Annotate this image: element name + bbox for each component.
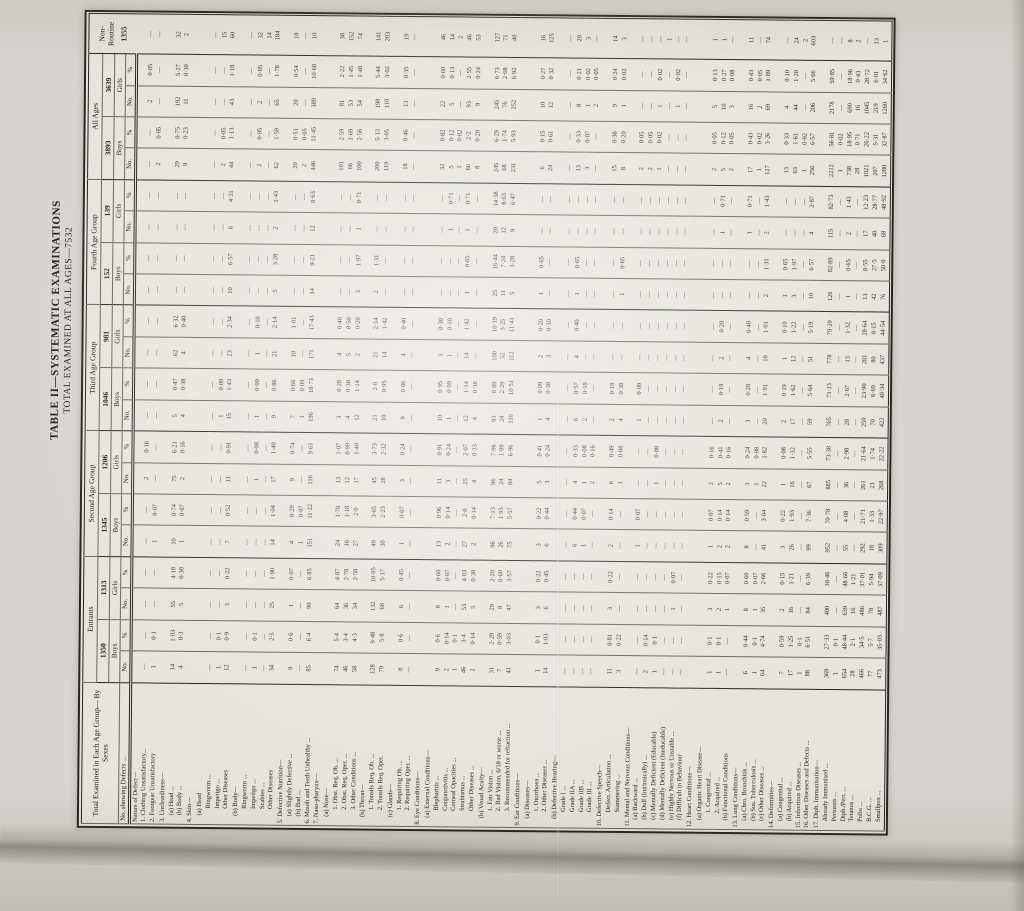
percent-value: 0·96 xyxy=(436,497,445,529)
percent-value: — xyxy=(683,122,692,154)
count-value xyxy=(363,339,373,371)
count-value: 952 xyxy=(824,532,833,564)
count-value xyxy=(414,654,424,686)
non-routine-value: 46 xyxy=(466,18,475,58)
count-value: 127 xyxy=(765,154,774,186)
count-value: 171 xyxy=(308,338,317,370)
count-value: 1 xyxy=(669,593,678,625)
percent-value: 4·08 xyxy=(842,501,851,533)
count-value xyxy=(528,278,538,310)
non-routine-value xyxy=(193,15,203,55)
percent-value: — xyxy=(580,561,589,593)
percent-value: 2·59 xyxy=(338,119,347,151)
percent-value: 0·02 xyxy=(837,124,846,156)
percent-value: 0·38 xyxy=(180,369,189,401)
count-value: 2 xyxy=(647,153,656,185)
count-value xyxy=(192,86,202,118)
percent-value: — xyxy=(173,243,182,275)
percent-value: 0·54 xyxy=(293,55,302,87)
count-value: — xyxy=(242,652,251,684)
girls-total: 1313 xyxy=(97,556,110,619)
count-value: — xyxy=(408,402,417,434)
percent-value: 1·14 xyxy=(463,371,472,403)
percent-value: 0·07 xyxy=(752,563,761,595)
count-value xyxy=(696,656,706,688)
percent-value xyxy=(771,374,781,406)
percent-value xyxy=(426,434,436,466)
percent-value: — xyxy=(211,118,220,150)
percent-value: — xyxy=(754,374,763,406)
count-value: 88 xyxy=(805,657,814,689)
count-value: — xyxy=(210,212,219,244)
count-value: 1 xyxy=(724,594,733,626)
count-value: — xyxy=(616,530,625,562)
count-value: 66 xyxy=(347,150,356,182)
count-value: 3 xyxy=(729,91,738,123)
count-value: 10 xyxy=(227,275,236,307)
non-routine-value xyxy=(329,16,339,56)
count-value: 76 xyxy=(502,89,511,121)
percent-value xyxy=(818,186,828,218)
percent-value: 0·40 xyxy=(181,306,190,338)
count-value: — xyxy=(652,530,661,562)
count-value xyxy=(526,466,536,498)
count-value xyxy=(136,85,148,117)
percent-value: 0·14 xyxy=(716,499,725,531)
count-value: — xyxy=(145,337,154,369)
percent-value xyxy=(597,561,607,593)
percent-value: 0·30 xyxy=(183,54,192,86)
count-value: — xyxy=(153,400,162,432)
count-value: 1 xyxy=(534,655,543,687)
percent-value: 0·40 xyxy=(573,310,582,342)
count-value xyxy=(529,152,539,184)
count-value: — xyxy=(674,153,683,185)
percent-value: 0·44 xyxy=(742,625,751,657)
percent-value: 1·25 xyxy=(787,626,796,658)
percent-value: — xyxy=(264,181,273,213)
count-value: 1 xyxy=(297,527,306,559)
count-value: 10 xyxy=(763,343,772,375)
percent-value: 0·07 xyxy=(584,121,593,153)
percent-value: 0·30 xyxy=(546,309,555,341)
count-value: 5 xyxy=(171,400,180,432)
count-value: — xyxy=(457,88,466,120)
percent-value xyxy=(478,623,488,655)
count-value: 3 xyxy=(336,402,345,434)
percent-value: — xyxy=(411,57,420,89)
count-value: 28 xyxy=(380,465,389,497)
count-value: 17 xyxy=(747,154,756,186)
count-value: — xyxy=(754,343,763,375)
non-routine-value: 60 xyxy=(230,15,239,55)
percent-value xyxy=(555,309,565,341)
count-value: 28 xyxy=(850,658,859,690)
percent-value: — xyxy=(566,121,575,153)
count-value: — xyxy=(212,86,221,118)
percent-value: — xyxy=(838,61,847,93)
count-value: — xyxy=(207,589,216,621)
percent-value xyxy=(629,122,639,154)
count-value: 1 xyxy=(581,467,590,499)
count-value: — xyxy=(216,526,225,558)
count-value: — xyxy=(173,274,182,306)
non-routine-value: — xyxy=(248,15,257,55)
count-value xyxy=(361,528,371,560)
percent-value: 6·29 xyxy=(493,120,502,152)
percent-value: — xyxy=(206,620,215,652)
count-value: — xyxy=(678,593,687,625)
count-value: — xyxy=(574,215,583,247)
percent-value: 0·38 xyxy=(618,373,627,405)
count-value: 13 xyxy=(335,464,344,496)
count-value xyxy=(163,274,173,306)
percent-value xyxy=(700,248,710,280)
count-value: — xyxy=(709,342,718,374)
percent-value: 0·51 xyxy=(292,118,301,150)
count-value xyxy=(160,588,170,620)
count-value: 8 xyxy=(474,151,483,183)
percent-value: 0·09 xyxy=(218,369,227,401)
percent-value: — xyxy=(583,184,592,216)
percent-value: — xyxy=(637,247,646,279)
non-routine-value: 1 xyxy=(712,20,721,60)
count-value: — xyxy=(672,279,681,311)
count-value: 14 xyxy=(270,527,279,559)
count-value: — xyxy=(799,280,808,312)
percent-value: 1·69 xyxy=(347,119,356,151)
count-value: 4 xyxy=(180,400,189,432)
percent-value xyxy=(598,435,608,467)
count-value: 26 xyxy=(788,532,797,564)
pct-caption: % xyxy=(123,305,134,337)
count-value xyxy=(314,590,324,622)
count-value: — xyxy=(472,340,481,372)
percent-value xyxy=(134,242,146,274)
percent-value xyxy=(201,117,211,149)
count-value: 2 xyxy=(373,276,382,308)
count-value: 389 xyxy=(310,87,319,119)
percent-value xyxy=(317,307,327,339)
count-value: — xyxy=(255,212,264,244)
count-value: 3 xyxy=(615,656,624,688)
count-value: — xyxy=(683,91,692,123)
no-caption: No. xyxy=(120,525,131,557)
count-value: 16 xyxy=(788,594,797,626)
non-routine-value: 2 xyxy=(856,21,865,61)
count-value xyxy=(480,466,490,498)
count-value: 1 xyxy=(636,404,645,436)
percent-value: — xyxy=(208,495,217,527)
non-routine-value xyxy=(239,15,249,55)
percent-value xyxy=(134,305,146,337)
percent-value: 0·22 xyxy=(780,500,789,532)
percent-value xyxy=(364,182,374,214)
percent-value: 0·40 xyxy=(745,311,754,343)
percent-value: — xyxy=(263,369,272,401)
percent-value: 0·81 xyxy=(606,624,615,656)
count-value xyxy=(234,526,244,558)
percent-value: 3·03 xyxy=(506,623,515,655)
percent-value xyxy=(598,498,608,530)
percent-value: 1·43 xyxy=(226,369,235,401)
percent-value: 0·22 xyxy=(707,562,716,594)
count-value: — xyxy=(834,406,843,438)
percent-value: — xyxy=(143,494,152,526)
no-caption: No. xyxy=(122,337,133,369)
count-value xyxy=(280,401,290,433)
percent-value: 0·66 xyxy=(290,370,299,402)
non-routine-value: — xyxy=(648,19,657,59)
percent-value: 0·71 xyxy=(719,185,728,217)
percent-value xyxy=(527,372,537,404)
count-value xyxy=(769,594,779,626)
count-value xyxy=(528,215,538,247)
non-routine-value: 3 xyxy=(621,19,630,59)
count-value: — xyxy=(723,657,732,689)
count-value: 67 xyxy=(806,469,815,501)
percent-value xyxy=(420,120,430,152)
count-value xyxy=(163,211,173,243)
count-value: 3 xyxy=(399,465,408,497)
count-value xyxy=(699,342,709,374)
count-value: — xyxy=(547,215,556,247)
col-group-label: Fourth Age Group xyxy=(86,179,101,305)
percent-value: — xyxy=(265,118,274,150)
percent-value xyxy=(736,311,746,343)
percent-value xyxy=(159,620,169,652)
count-value xyxy=(317,276,327,308)
percent-value: — xyxy=(680,373,689,405)
non-routine-value: — xyxy=(412,17,421,57)
percent-value xyxy=(626,373,636,405)
percent-value xyxy=(426,497,436,529)
percent-value: 2·34 xyxy=(227,306,236,338)
count-value: 25 xyxy=(269,589,278,621)
percent-value xyxy=(415,622,425,654)
percent-value: 0·08 xyxy=(780,437,789,469)
non-routine-value: 3 xyxy=(585,19,594,59)
percent-value: 0·10 xyxy=(784,60,793,92)
no-caption: No. xyxy=(120,588,131,620)
count-value: 1045 xyxy=(864,92,873,124)
count-value xyxy=(428,214,438,246)
count-value: 2 xyxy=(257,87,266,119)
percent-value: 35·03 xyxy=(876,627,886,659)
count-value xyxy=(629,90,639,122)
pct-caption: % xyxy=(124,180,135,212)
percent-value: 0·07 xyxy=(179,494,188,526)
count-value: 1 xyxy=(584,90,593,122)
percent-value xyxy=(814,563,824,595)
percent-value: — xyxy=(563,498,572,530)
percent-value xyxy=(427,371,437,403)
percent-value: — xyxy=(835,375,844,407)
count-value xyxy=(319,87,329,119)
percent-value: 1·03 xyxy=(169,620,178,652)
percent-value: 23·90 xyxy=(861,375,870,407)
count-value: 2 xyxy=(581,404,590,436)
count-value: 15 xyxy=(226,400,235,432)
non-routine-value: — xyxy=(640,19,649,59)
percent-value: — xyxy=(645,373,654,405)
percent-value: 0·13 xyxy=(449,57,458,89)
count-value: — xyxy=(220,86,229,118)
percent-value xyxy=(280,432,290,464)
percent-value xyxy=(362,370,372,402)
percent-value: — xyxy=(639,59,648,91)
percent-value: 0·65 xyxy=(574,247,583,279)
count-value xyxy=(430,88,440,120)
count-value xyxy=(598,530,608,562)
percent-value: 3·4 xyxy=(342,622,351,654)
row-label: (b) Functional Conditions xyxy=(722,688,732,830)
percent-value: 0·71 xyxy=(465,183,474,215)
percent-value: — xyxy=(564,309,573,341)
count-value: 1 xyxy=(657,90,666,122)
count-value: — xyxy=(664,216,673,248)
percent-value: 5·7 xyxy=(868,627,877,659)
count-value: 3 xyxy=(584,153,593,185)
percent-value: — xyxy=(209,306,218,338)
count-value: 10 xyxy=(539,89,548,121)
count-value: — xyxy=(264,212,273,244)
count-value xyxy=(425,528,435,560)
non-routine-value xyxy=(202,15,212,55)
count-value: — xyxy=(562,592,571,624)
percent-value: 0·29 xyxy=(289,495,298,527)
percent-value: — xyxy=(247,181,256,213)
count-value: 21 xyxy=(372,402,381,434)
count-value: 34 xyxy=(269,652,278,684)
count-value xyxy=(424,654,434,686)
count-value: 10 xyxy=(436,402,445,434)
percent-value: 1·04 xyxy=(270,495,279,527)
count-value: 20 xyxy=(762,406,771,438)
count-value xyxy=(557,89,567,121)
percent-value: 0·27 xyxy=(720,60,729,92)
no-caption: No. xyxy=(125,85,136,117)
percent-value: — xyxy=(408,371,417,403)
non-routine-value: 152 xyxy=(348,16,357,56)
percent-value: — xyxy=(582,310,591,342)
count-value: — xyxy=(616,593,625,625)
count-value xyxy=(596,655,606,687)
percent-value: — xyxy=(146,180,155,212)
percent-value: — xyxy=(260,621,269,653)
non-routine-value: — xyxy=(838,21,847,61)
percent-value: — xyxy=(854,187,863,219)
count-value: — xyxy=(582,341,591,373)
non-routine-value xyxy=(602,19,612,59)
percent-value xyxy=(601,121,611,153)
count-value: 252 xyxy=(511,89,520,121)
percent-value: 11·41 xyxy=(509,309,518,341)
percent-value xyxy=(162,306,172,338)
non-routine-value xyxy=(692,20,702,60)
count-value: — xyxy=(406,654,415,686)
count-value xyxy=(391,214,401,246)
percent-value xyxy=(484,57,494,89)
percent-value xyxy=(236,243,246,275)
count-value: 2 xyxy=(781,406,790,438)
count-value: — xyxy=(661,530,670,562)
percent-value: — xyxy=(154,243,163,275)
percent-value: — xyxy=(302,56,311,88)
percent-value: — xyxy=(634,562,643,594)
percent-value xyxy=(200,306,210,338)
count-value xyxy=(315,464,325,496)
count-value xyxy=(624,593,634,625)
count-value: 422 xyxy=(878,407,888,439)
count-value: — xyxy=(652,593,661,625)
percent-value: — xyxy=(724,625,733,657)
count-value: 8 xyxy=(743,531,752,563)
non-routine-value: 14 xyxy=(449,17,458,57)
percent-value xyxy=(329,119,339,151)
count-value: — xyxy=(671,468,680,500)
non-routine-value: 20 xyxy=(576,19,585,59)
count-value: 110 xyxy=(384,88,393,120)
count-value xyxy=(365,88,375,120)
count-value xyxy=(280,338,290,370)
count-value: — xyxy=(215,589,224,621)
count-value: — xyxy=(155,211,164,243)
count-value xyxy=(700,279,710,311)
percent-value: 6·57 xyxy=(809,249,818,281)
count-value: 5 xyxy=(272,275,281,307)
col-group-label: Third Age Group xyxy=(85,305,100,431)
count-value: 43 xyxy=(229,86,238,118)
percent-value xyxy=(419,182,429,214)
percent-value xyxy=(701,122,711,154)
count-value xyxy=(315,527,325,559)
percent-value: — xyxy=(410,182,419,214)
count-value: 1 xyxy=(254,338,263,370)
percent-value: — xyxy=(665,122,674,154)
percent-value xyxy=(363,308,373,340)
percent-value: 0·02 xyxy=(584,58,593,90)
percent-value xyxy=(817,312,827,344)
non-routine-value: — xyxy=(730,20,739,60)
count-value: — xyxy=(836,218,845,250)
percent-value: 0·1 xyxy=(706,625,715,657)
percent-value: 2·07 xyxy=(463,434,472,466)
count-value: 6 xyxy=(544,529,553,561)
count-value: — xyxy=(671,405,680,437)
count-value: — xyxy=(644,530,653,562)
percent-value xyxy=(698,499,708,531)
count-value: — xyxy=(654,342,663,374)
percent-value xyxy=(736,248,746,280)
systematic-examinations-table: Total Examined in Each Age Group— By Sex… xyxy=(80,13,892,832)
count-value xyxy=(737,217,747,249)
non-routine-value: 14 xyxy=(612,19,621,59)
percent-value xyxy=(188,494,198,526)
percent-value: 0·07 xyxy=(580,498,589,530)
percent-value: — xyxy=(474,183,483,215)
percent-value: 6·92 xyxy=(511,58,520,90)
count-value: 13 xyxy=(862,281,871,313)
percent-value xyxy=(519,120,529,152)
non-routine-value: 127 xyxy=(494,18,503,58)
percent-value: — xyxy=(638,184,647,216)
count-value: 1 xyxy=(253,401,262,433)
percent-value xyxy=(480,434,490,466)
count-value: — xyxy=(718,280,727,312)
percent-value: — xyxy=(754,311,763,343)
percent-value: 1·59 xyxy=(274,118,283,150)
